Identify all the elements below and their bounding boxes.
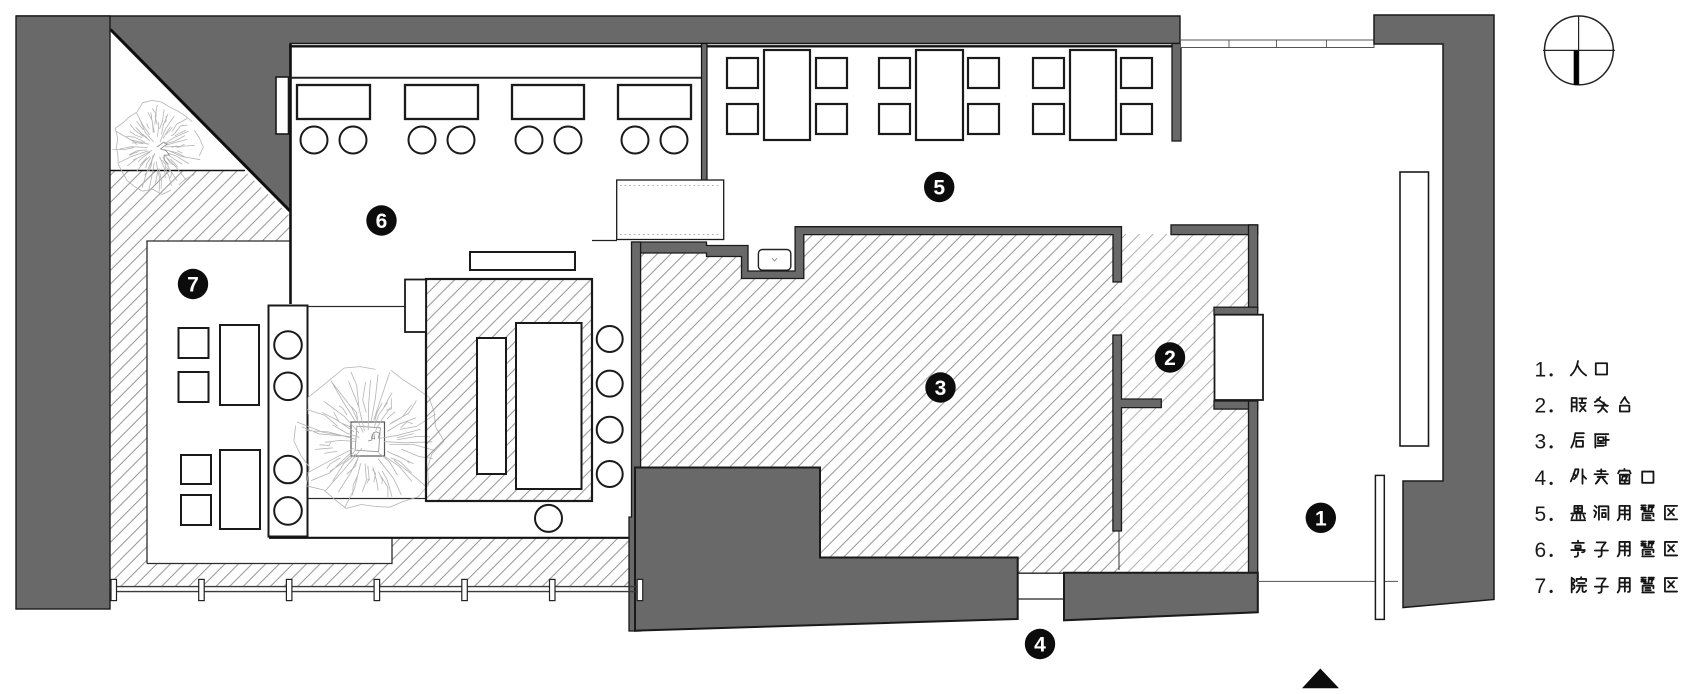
svg-text:1．: 1． [1535, 359, 1568, 382]
svg-text:3: 3 [935, 377, 947, 400]
svg-text:7: 7 [187, 274, 199, 297]
svg-text:5．: 5． [1535, 503, 1568, 526]
svg-text:1: 1 [1315, 507, 1327, 530]
svg-text:2．: 2． [1535, 395, 1568, 418]
svg-text:7．: 7． [1535, 575, 1568, 598]
svg-text:3．: 3． [1535, 431, 1568, 454]
svg-text:5: 5 [933, 177, 945, 200]
svg-text:6．: 6． [1535, 539, 1568, 562]
svg-text:2: 2 [1164, 347, 1176, 370]
svg-text:4: 4 [1034, 634, 1046, 657]
svg-text:4．: 4． [1535, 467, 1568, 490]
svg-text:6: 6 [376, 210, 388, 233]
